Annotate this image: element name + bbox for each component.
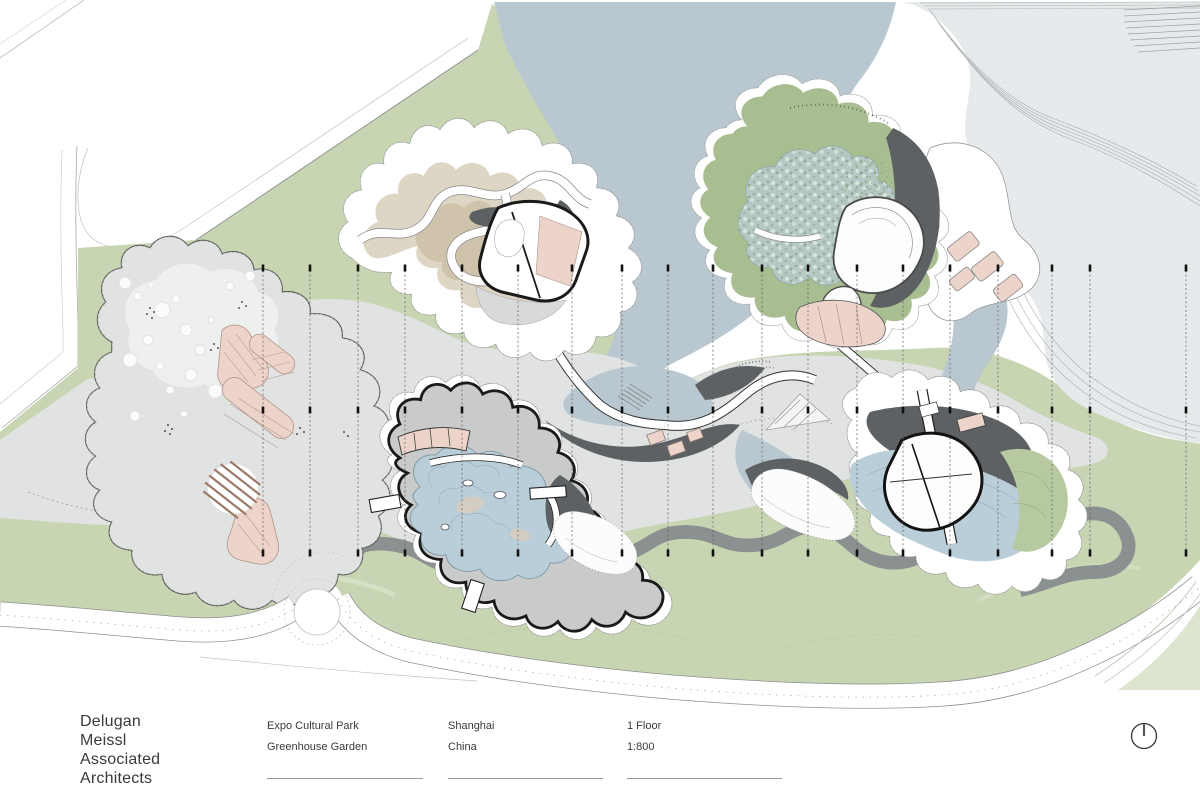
project-name: Expo Cultural Park: [267, 716, 367, 737]
project-column: Expo Cultural Park Greenhouse Garden: [267, 716, 367, 758]
sheet-scale: 1:800: [627, 737, 661, 758]
location-country: China: [448, 737, 495, 758]
sheet-column: 1 Floor 1:800: [627, 716, 661, 758]
sheet-floor: 1 Floor: [627, 716, 661, 737]
site-plan-drawing: [0, 0, 1200, 800]
project-subtitle: Greenhouse Garden: [267, 737, 367, 758]
title-block: Delugan Meissl Associated Architects Exp…: [0, 700, 1200, 800]
location-column: Shanghai China: [448, 716, 495, 758]
north-arrow-icon: [1128, 720, 1160, 752]
location-city: Shanghai: [448, 716, 495, 737]
signature-rule-2: [448, 778, 603, 779]
firm-name: Delugan Meissl Associated Architects: [80, 712, 160, 788]
drawing-sheet: Delugan Meissl Associated Architects Exp…: [0, 0, 1200, 800]
signature-rule-1: [267, 778, 423, 779]
signature-rule-3: [627, 778, 782, 779]
